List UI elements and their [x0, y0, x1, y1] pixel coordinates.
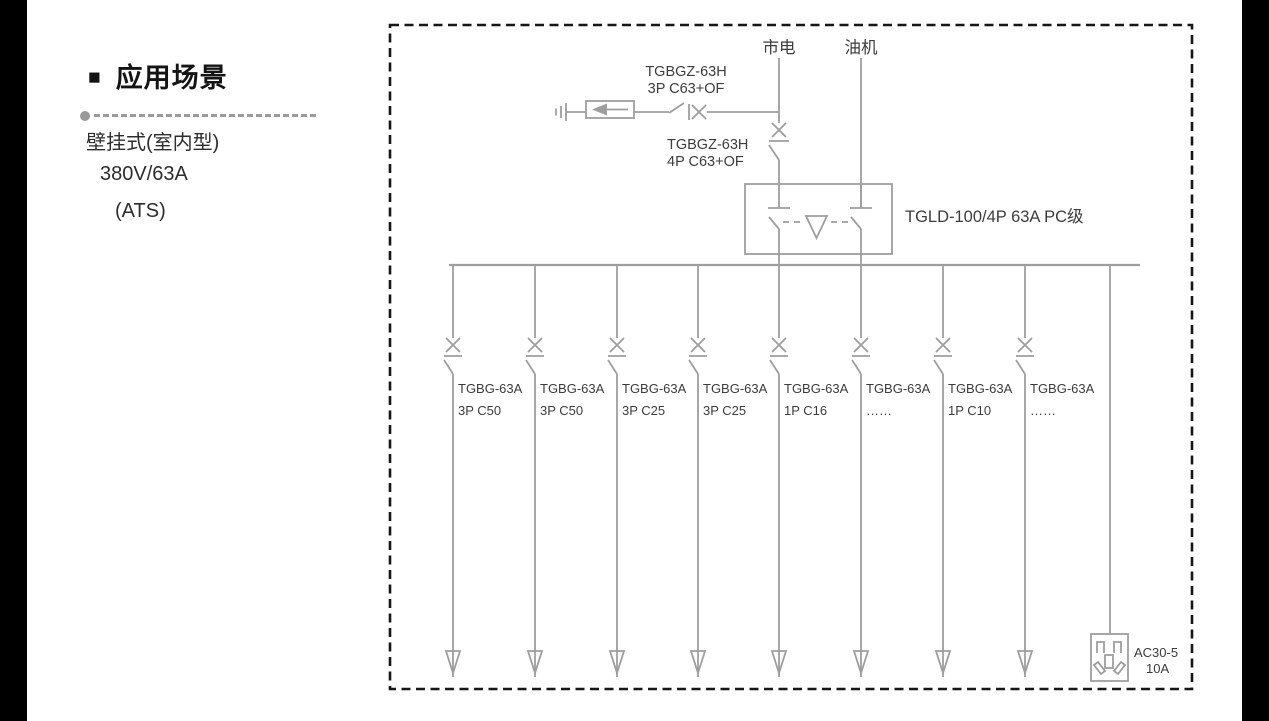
socket-branch: AC30-5 10A — [1091, 265, 1178, 681]
ats-generator-switch — [850, 184, 872, 229]
mains-source: 市电 — [763, 38, 796, 123]
branch-breaker-symbol — [669, 103, 706, 120]
socket-spec: 10A — [1146, 661, 1169, 676]
feeder-5: TGBG-63A 1P C16 — [770, 265, 849, 677]
feeder-8: TGBG-63A …… — [1016, 265, 1095, 677]
ats-outline — [745, 184, 892, 254]
single-line-diagram: 市电 油机 TGBGZ-63H 3P C63+OF TGBGZ-63H — [0, 0, 1269, 721]
generator-label: 油机 — [845, 38, 879, 57]
ats-mechanism-icon — [783, 216, 849, 238]
main-breaker: TGBGZ-63H 4P C63+OF — [667, 123, 789, 184]
feeder-1: TGBG-63A 3P C50 — [444, 265, 523, 677]
feeder-model: TGBG-63A — [622, 381, 687, 396]
feeder-model: TGBG-63A — [1030, 381, 1095, 396]
feeder-model: TGBG-63A — [703, 381, 768, 396]
feeder-model: TGBG-63A — [458, 381, 523, 396]
feeder-spec: …… — [866, 403, 892, 418]
feeder-4: TGBG-63A 3P C25 — [689, 265, 768, 677]
ats-label: TGLD-100/4P 63A PC级 — [905, 207, 1084, 226]
feeder-model: TGBG-63A — [948, 381, 1013, 396]
feeder-spec: 3P C25 — [622, 403, 665, 418]
feeder-7: TGBG-63A 1P C10 — [934, 265, 1013, 677]
generator-source: 油机 — [845, 38, 879, 208]
feeder-3: TGBG-63A 3P C25 — [608, 265, 687, 677]
feeder-spec: …… — [1030, 403, 1056, 418]
feeder-6: TGBG-63A …… — [852, 265, 931, 677]
mains-label: 市电 — [763, 38, 796, 57]
ats-box — [745, 184, 892, 265]
feeder-spec: 3P C25 — [703, 403, 746, 418]
main-breaker-spec: 4P C63+OF — [667, 154, 744, 170]
spd-breaker-spec: 3P C63+OF — [648, 81, 725, 97]
spd-branch: TGBGZ-63H 3P C63+OF — [556, 64, 779, 121]
diagram-dashed-border — [390, 25, 1192, 689]
ground-icon — [556, 103, 566, 121]
feeder-model: TGBG-63A — [866, 381, 931, 396]
feeder-spec: 3P C50 — [540, 403, 583, 418]
feeder-2: TGBG-63A 3P C50 — [526, 265, 605, 677]
feeder-spec: 1P C10 — [948, 403, 991, 418]
feeder-spec: 3P C50 — [458, 403, 501, 418]
feeder-model: TGBG-63A — [540, 381, 605, 396]
socket-icon — [1091, 634, 1128, 681]
socket-model: AC30-5 — [1134, 645, 1178, 660]
feeder-model: TGBG-63A — [784, 381, 849, 396]
feeder-spec: 1P C16 — [784, 403, 827, 418]
spd-device-symbol — [586, 101, 634, 118]
main-breaker-model: TGBGZ-63H — [667, 137, 748, 153]
spd-breaker-model: TGBGZ-63H — [645, 64, 726, 80]
main-breaker-symbol — [769, 123, 789, 160]
